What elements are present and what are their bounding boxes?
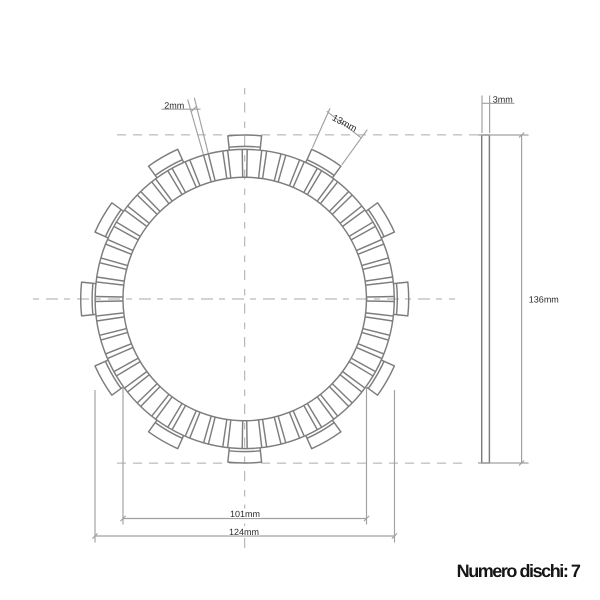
svg-text:124mm: 124mm bbox=[229, 527, 259, 537]
svg-text:101mm: 101mm bbox=[230, 509, 260, 519]
svg-text:2mm: 2mm bbox=[164, 101, 184, 111]
svg-text:136mm: 136mm bbox=[529, 294, 559, 304]
svg-text:13mm: 13mm bbox=[330, 113, 359, 135]
svg-text:3mm: 3mm bbox=[493, 95, 513, 105]
